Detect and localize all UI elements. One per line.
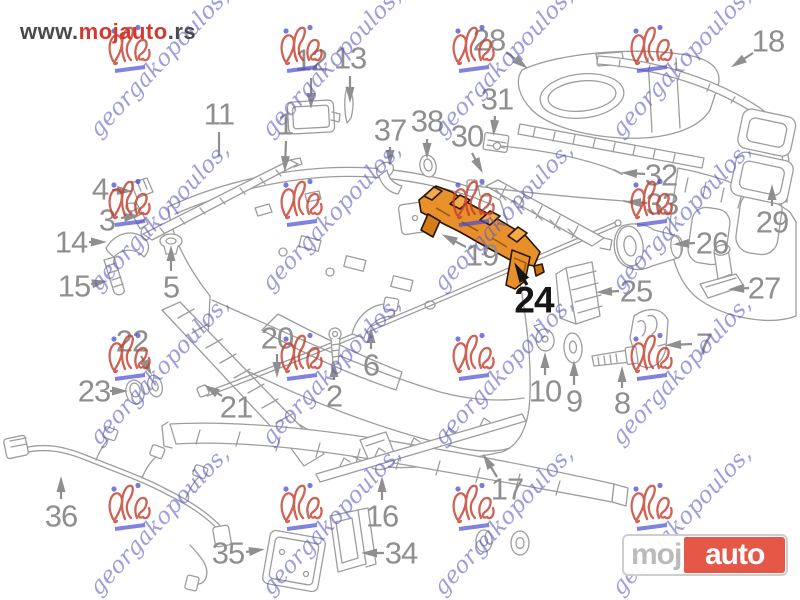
part-label-28: 28 bbox=[473, 25, 505, 56]
callout-labels: 1234567891011121314151617181920212223242… bbox=[0, 0, 800, 600]
logo-text-red: auto bbox=[684, 537, 785, 573]
part-label-11: 11 bbox=[204, 99, 234, 130]
logo-text-gray: moj bbox=[624, 536, 681, 574]
part-label-12: 12 bbox=[295, 45, 327, 76]
part-label-2: 2 bbox=[326, 381, 342, 412]
part-label-17: 17 bbox=[491, 474, 523, 505]
part-label-33: 33 bbox=[646, 189, 678, 220]
part-label-5: 5 bbox=[163, 272, 179, 303]
part-label-15: 15 bbox=[58, 271, 90, 302]
part-label-26: 26 bbox=[696, 228, 728, 259]
part-label-30: 30 bbox=[451, 121, 483, 152]
part-label-37: 37 bbox=[374, 115, 406, 146]
mojauto-logo: moj auto bbox=[622, 534, 788, 576]
part-label-35: 35 bbox=[212, 538, 244, 569]
part-label-3: 3 bbox=[99, 205, 115, 236]
part-label-29: 29 bbox=[756, 207, 788, 238]
part-label-19: 19 bbox=[466, 240, 498, 271]
part-label-36: 36 bbox=[45, 501, 77, 532]
part-label-8: 8 bbox=[614, 388, 630, 419]
site-url-suffix: .rs bbox=[168, 19, 196, 44]
part-label-21: 21 bbox=[220, 392, 252, 423]
part-label-27: 27 bbox=[748, 273, 780, 304]
site-url-brand: mojauto bbox=[79, 19, 168, 44]
part-label-38: 38 bbox=[411, 106, 443, 137]
part-label-23: 23 bbox=[78, 376, 110, 407]
part-label-9: 9 bbox=[566, 386, 582, 417]
part-label-14: 14 bbox=[55, 227, 87, 258]
part-label-24: 24 bbox=[514, 282, 553, 319]
part-label-13: 13 bbox=[334, 43, 366, 74]
part-label-16: 16 bbox=[366, 501, 398, 532]
part-label-4: 4 bbox=[92, 174, 108, 205]
part-label-22: 22 bbox=[116, 326, 148, 357]
part-label-1: 1 bbox=[277, 109, 293, 140]
part-label-18: 18 bbox=[752, 26, 784, 57]
part-label-10: 10 bbox=[529, 376, 561, 407]
part-label-25: 25 bbox=[620, 276, 652, 307]
part-label-34: 34 bbox=[385, 538, 417, 569]
part-label-20: 20 bbox=[261, 323, 293, 354]
site-url: www.mojauto.rs bbox=[20, 19, 196, 45]
part-label-31: 31 bbox=[481, 84, 513, 115]
part-label-7: 7 bbox=[696, 329, 712, 360]
site-url-prefix: www. bbox=[20, 19, 79, 44]
parts-diagram-page: 1234567891011121314151617181920212223242… bbox=[0, 0, 800, 600]
part-label-6: 6 bbox=[363, 350, 379, 381]
